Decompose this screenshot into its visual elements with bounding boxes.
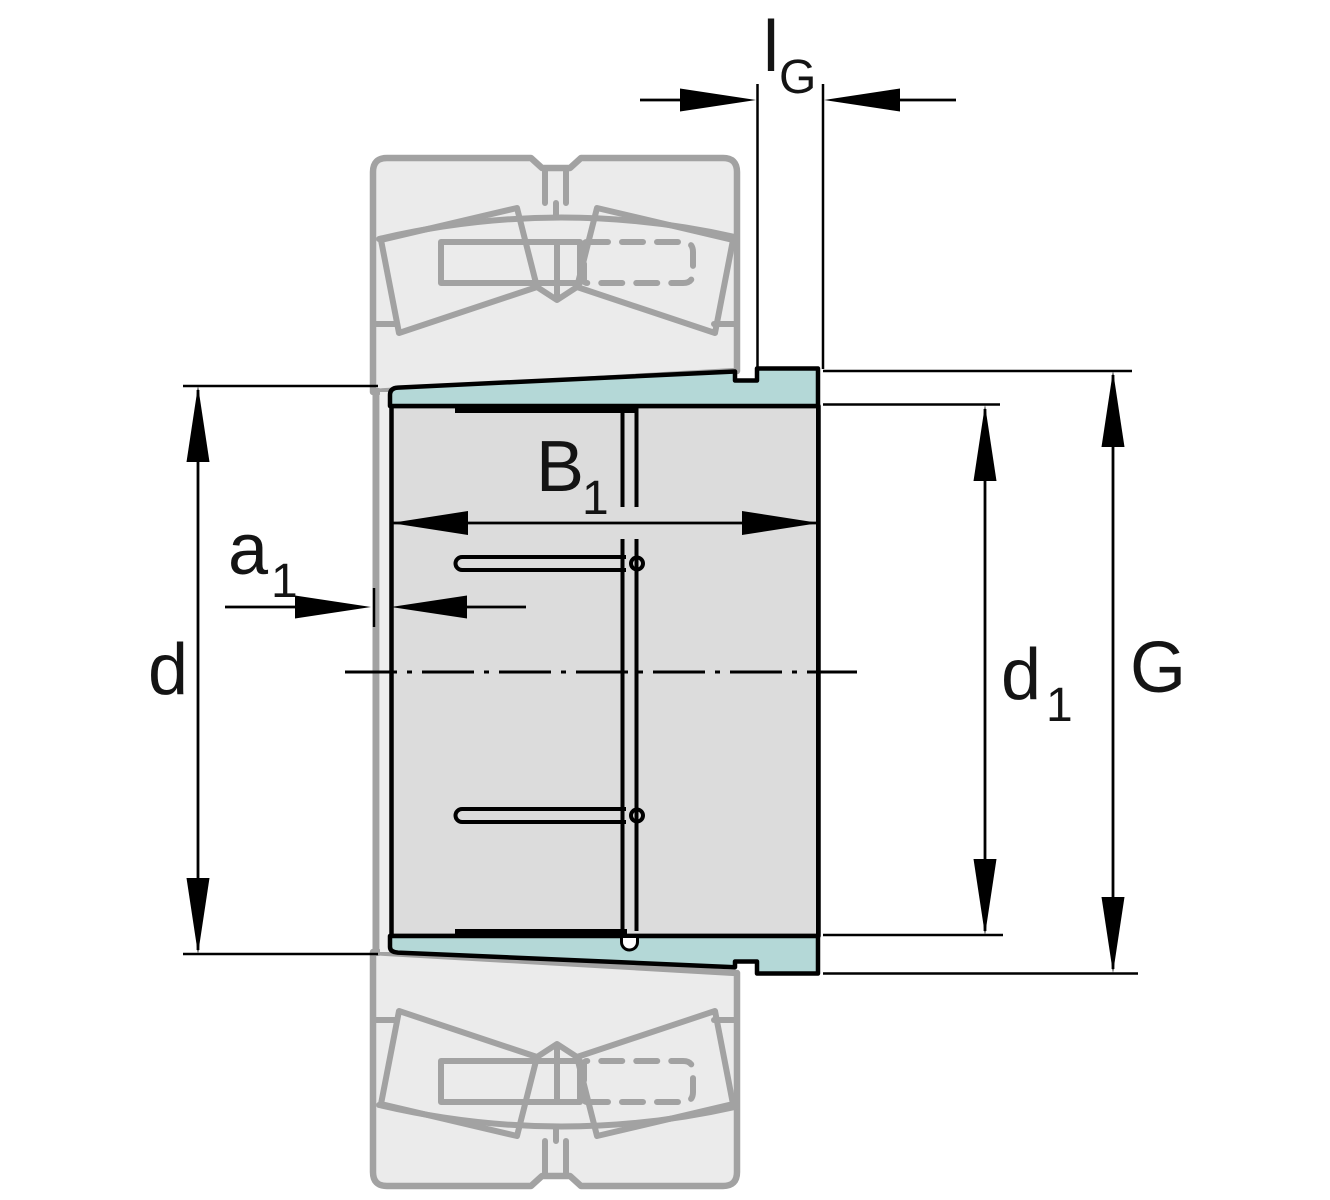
- label-a1: a: [228, 510, 269, 590]
- label-B1-sub: 1: [582, 472, 609, 525]
- bearing-bottom-half: [373, 952, 737, 1186]
- label-G: G: [1130, 628, 1186, 708]
- label-a1-sub: 1: [271, 555, 298, 608]
- label-d1: d: [1001, 635, 1041, 715]
- bearing-top-half: [373, 158, 737, 392]
- label-d1-sub: 1: [1046, 679, 1073, 732]
- dimension-d: d: [148, 386, 378, 954]
- dimension-d1: d 1: [823, 405, 1073, 936]
- label-d: d: [148, 630, 188, 710]
- adapter-sleeve-drawing: l G B 1 a 1 d d 1: [0, 0, 1330, 1200]
- sleeve-slit-notch-bottom: [622, 938, 638, 950]
- label-B1: B: [536, 427, 584, 507]
- drawing-canvas: l G B 1 a 1 d d 1: [0, 0, 1330, 1200]
- label-lG-sub: G: [779, 51, 816, 104]
- label-lG: l: [763, 7, 779, 87]
